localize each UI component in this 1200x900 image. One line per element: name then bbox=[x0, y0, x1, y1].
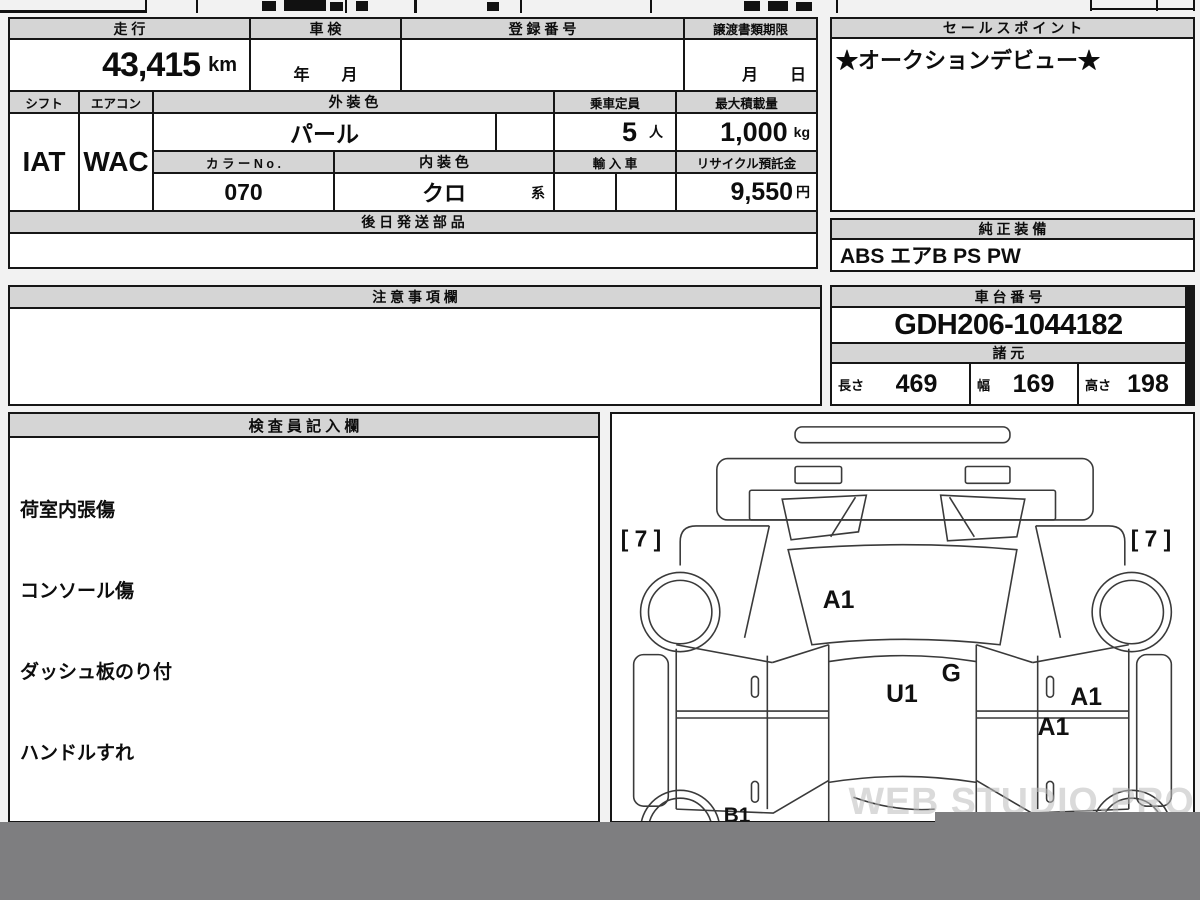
spec-height-cell: 高さ 198 bbox=[1079, 364, 1185, 404]
recycle-deposit-value: 9,550 円 bbox=[677, 174, 816, 210]
spec-height-label: 高さ bbox=[1085, 375, 1111, 394]
shaken-header: 車 検 bbox=[251, 19, 400, 38]
inspector-note-line: ダッシュ板のり付 bbox=[20, 659, 588, 686]
aircon-header: エアコン bbox=[80, 92, 152, 112]
sales-point-box: セ ー ル ス ポ イ ン ト ★オークションデビュー★ bbox=[830, 17, 1195, 212]
recycle-unit: 円 bbox=[796, 182, 810, 202]
color-no-header: カ ラ ー N o . bbox=[154, 152, 333, 172]
damage-mark-roof-u1: U1 bbox=[886, 681, 918, 708]
max-load-unit: kg bbox=[794, 124, 810, 140]
exterior-color-value: パール bbox=[154, 114, 495, 150]
chassis-no-value: GDH206-1044182 bbox=[832, 308, 1185, 342]
spec-length-label: 長さ bbox=[838, 375, 864, 394]
genuine-equipment-box: 純 正 装 備 ABS エアB PS PW bbox=[830, 218, 1195, 272]
inspector-note-line: ハンドルすれ bbox=[20, 740, 588, 767]
interior-color-name: クロ bbox=[422, 176, 466, 208]
spec-length-value: 469 bbox=[864, 370, 969, 399]
import-car-cell-1 bbox=[555, 174, 615, 210]
genuine-equipment-value: ABS エアB PS PW bbox=[832, 240, 1193, 270]
chassis-no-header: 車 台 番 号 bbox=[832, 287, 1185, 306]
interior-color-value: クロ 系 bbox=[335, 174, 553, 210]
car-outline bbox=[634, 427, 1172, 821]
later-parts-header: 後 日 発 送 部 品 bbox=[10, 212, 816, 232]
caution-notes-header: 注 意 事 項 欄 bbox=[10, 287, 820, 307]
registration-value bbox=[402, 40, 683, 90]
caution-notes-value bbox=[10, 309, 820, 404]
shift-value: IAT bbox=[10, 114, 78, 210]
transfer-docs-value: 月 日 bbox=[685, 40, 816, 90]
max-load-value: 1,000 kg bbox=[677, 114, 816, 150]
chassis-specs-box: 車 台 番 号 GDH206-1044182 諸 元 長さ 469 幅 169 … bbox=[830, 285, 1195, 406]
inspector-notes-box: 検 査 員 記 入 欄 荷室内張傷 コンソール傷 ダッシュ板のり付 ハンドルすれ… bbox=[8, 412, 600, 823]
recycle-deposit-header: リサイクル預託金 bbox=[677, 152, 816, 172]
inspector-note-line: 荷室内張傷 bbox=[20, 497, 588, 524]
later-parts-value bbox=[10, 234, 816, 267]
exterior-color-header: 外 装 色 bbox=[154, 92, 553, 112]
main-info-table: 走 行 車 検 登 録 番 号 譲渡書類期限 43,415 km 年 月 月 日… bbox=[8, 17, 818, 269]
inspector-note-line: コンソール傷 bbox=[20, 578, 588, 605]
aircon-value: WAC bbox=[80, 114, 152, 210]
spec-height-value: 198 bbox=[1111, 370, 1185, 399]
damage-mark-rear-b1: B1 bbox=[724, 804, 751, 821]
sales-point-value: ★オークションデビュー★ bbox=[832, 39, 1193, 210]
mileage-number: 43,415 bbox=[102, 46, 200, 85]
import-car-header: 輸 入 車 bbox=[555, 152, 675, 172]
capacity-header: 乗車定員 bbox=[555, 92, 675, 112]
mileage-unit: km bbox=[208, 54, 237, 77]
tire-depth-right: [ 7 ] bbox=[1131, 526, 1171, 552]
auction-sheet: 走 行 車 検 登 録 番 号 譲渡書類期限 43,415 km 年 月 月 日… bbox=[0, 0, 1200, 900]
capacity-unit: 人 bbox=[649, 122, 663, 142]
spec-width-cell: 幅 169 bbox=[971, 364, 1077, 404]
capacity-value: 5 人 bbox=[555, 114, 675, 150]
import-car-cell-2 bbox=[617, 174, 675, 210]
capacity-number: 5 bbox=[622, 117, 637, 148]
spec-length-cell: 長さ 469 bbox=[832, 364, 969, 404]
genuine-equipment-header: 純 正 装 備 bbox=[832, 220, 1193, 238]
damage-mark-glass-g: G bbox=[942, 660, 961, 687]
tire-depth-left: [ 7 ] bbox=[621, 526, 661, 552]
mileage-header: 走 行 bbox=[10, 19, 249, 38]
spec-width-value: 169 bbox=[990, 370, 1077, 399]
sales-point-header: セ ー ル ス ポ イ ン ト bbox=[832, 19, 1193, 37]
caution-notes-box: 注 意 事 項 欄 bbox=[8, 285, 822, 406]
max-load-header: 最大積載量 bbox=[677, 92, 816, 112]
inspector-notes-header: 検 査 員 記 入 欄 bbox=[10, 414, 598, 436]
registration-header: 登 録 番 号 bbox=[402, 19, 683, 38]
recycle-number: 9,550 bbox=[730, 178, 793, 207]
spec-width-label: 幅 bbox=[977, 375, 990, 394]
specs-header: 諸 元 bbox=[832, 344, 1185, 362]
damage-mark-windshield-a1: A1 bbox=[823, 587, 855, 614]
vehicle-diagram-box: WEB STUDIO.PRO [ 7 ] [ 7 ] A1 G U1 A1 A1… bbox=[610, 412, 1195, 823]
damage-mark-right-door-a1-upper: A1 bbox=[1070, 684, 1102, 711]
inspector-notes-list: 荷室内張傷 コンソール傷 ダッシュ板のり付 ハンドルすれ ホイールカバー A bbox=[10, 438, 598, 821]
max-load-number: 1,000 bbox=[720, 117, 788, 148]
interior-color-header: 内 装 色 bbox=[335, 152, 553, 172]
shift-header: シフト bbox=[10, 92, 78, 112]
shaken-value: 年 月 bbox=[251, 40, 400, 90]
transfer-docs-header: 譲渡書類期限 bbox=[685, 19, 816, 38]
interior-color-suffix: 系 bbox=[531, 183, 545, 203]
mileage-value: 43,415 km bbox=[10, 40, 249, 90]
vehicle-diagram: WEB STUDIO.PRO [ 7 ] [ 7 ] A1 G U1 A1 A1… bbox=[612, 414, 1193, 821]
color-no-value: 070 bbox=[154, 174, 333, 210]
censor-band-bottom bbox=[0, 822, 1200, 900]
damage-mark-right-door-a1-lower: A1 bbox=[1038, 714, 1070, 741]
exterior-color-extra-cell bbox=[497, 114, 553, 150]
